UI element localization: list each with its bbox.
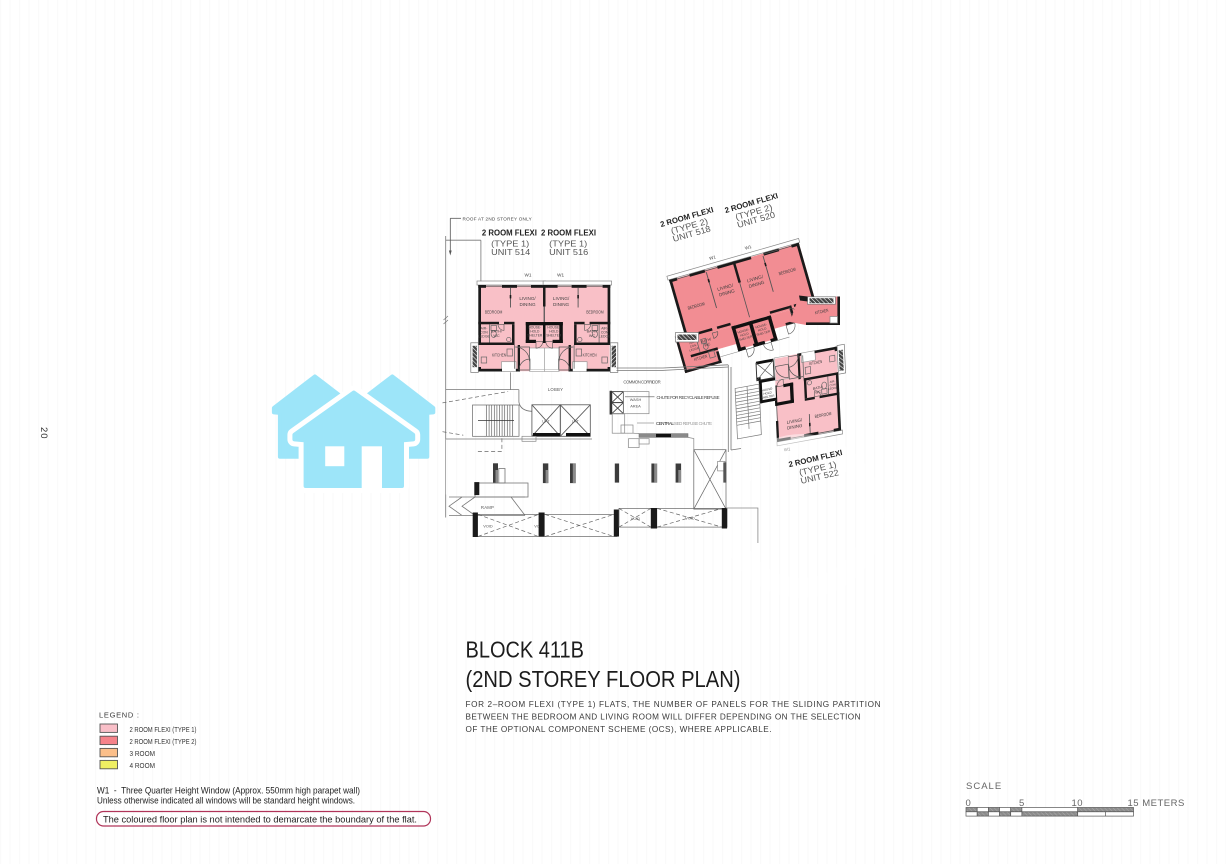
svg-text:WASH: WASH — [630, 397, 642, 402]
svg-text:BEDROOM: BEDROOM — [485, 310, 503, 315]
svg-text:SHELTER: SHELTER — [527, 334, 543, 338]
svg-text:4 ROOM: 4 ROOM — [130, 763, 156, 770]
svg-text:WC: WC — [589, 334, 596, 338]
svg-text:DINING: DINING — [553, 302, 570, 307]
svg-text:VOID: VOID — [631, 516, 641, 521]
svg-text:2 ROOM FLEXI (TYPE 2): 2 ROOM FLEXI (TYPE 2) — [130, 739, 197, 746]
svg-text:BETWEEN THE BEDROOM AND LIVING: BETWEEN THE BEDROOM AND LIVING ROOM WILL… — [466, 713, 861, 722]
svg-text:15 METERS: 15 METERS — [1128, 798, 1185, 809]
svg-text:LEDGE: LEDGE — [478, 335, 490, 339]
svg-text:2 ROOM FLEXI (TYPE 1): 2 ROOM FLEXI (TYPE 1) — [130, 727, 197, 734]
svg-text:LIFT: LIFT — [542, 420, 550, 424]
svg-text:20: 20 — [38, 427, 49, 440]
svg-text:WC: WC — [493, 334, 500, 338]
svg-text:3 ROOM: 3 ROOM — [130, 751, 156, 758]
svg-text:SHELTER: SHELTER — [546, 334, 562, 338]
svg-text:DINING: DINING — [519, 302, 536, 307]
svg-text:BATH/: BATH/ — [491, 330, 503, 334]
svg-text:W1: W1 — [557, 272, 564, 277]
svg-text:The coloured floor plan is not: The coloured floor plan is not intended … — [103, 814, 417, 825]
svg-text:LEGEND :: LEGEND : — [99, 711, 140, 720]
svg-text:BATH/: BATH/ — [587, 330, 599, 334]
svg-text:CENTRALISED REFUSE CHUTE: CENTRALISED REFUSE CHUTE — [656, 421, 712, 426]
svg-text:Unless otherwise indicated all: Unless otherwise indicated all windows w… — [97, 796, 355, 806]
svg-text:UNIT 516: UNIT 516 — [549, 247, 588, 257]
svg-text:ROOF AT 2ND STOREY ONLY: ROOF AT 2ND STOREY ONLY — [463, 216, 532, 221]
svg-text:LOBBY: LOBBY — [548, 387, 563, 392]
svg-text:LIVING/: LIVING/ — [519, 296, 536, 301]
svg-text:W1: W1 — [525, 272, 532, 277]
svg-text:BEDROOM: BEDROOM — [586, 310, 604, 315]
svg-text:(2ND STOREY FLOOR PLAN): (2ND STOREY FLOOR PLAN) — [466, 666, 741, 692]
svg-text:LIFT: LIFT — [572, 420, 580, 424]
svg-text:2 ROOM FLEXI: 2 ROOM FLEXI — [482, 229, 537, 238]
svg-text:2 ROOM FLEXI: 2 ROOM FLEXI — [541, 229, 596, 238]
svg-text:VOID: VOID — [685, 516, 695, 521]
svg-text:LEDGE: LEDGE — [599, 335, 611, 339]
svg-text:BLOCK 411B: BLOCK 411B — [466, 637, 585, 663]
svg-text:LIVING/: LIVING/ — [553, 296, 570, 301]
svg-text:W1 - Three Quarter Height Wi: W1 - Three Quarter Height Window (Approx… — [97, 786, 360, 796]
svg-text:UNIT 514: UNIT 514 — [491, 247, 530, 257]
svg-text:KITCHEN: KITCHEN — [492, 353, 506, 358]
svg-text:CHUTE FOR RECYCLABLE REFUSE: CHUTE FOR RECYCLABLE REFUSE — [657, 395, 720, 400]
svg-text:SCALE: SCALE — [966, 781, 1002, 792]
svg-text:AREA: AREA — [630, 404, 641, 409]
svg-text:OF THE OPTIONAL COMPONENT SCHE: OF THE OPTIONAL COMPONENT SCHEME (OCS), … — [466, 725, 772, 734]
svg-text:FOR 2–ROOM FLEXI (TYPE 1) FLAT: FOR 2–ROOM FLEXI (TYPE 1) FLATS, THE NUM… — [466, 700, 881, 709]
svg-text:COMMON CORRIDOR: COMMON CORRIDOR — [623, 379, 661, 384]
svg-text:RAMP: RAMP — [481, 505, 494, 510]
svg-text:KITCHEN: KITCHEN — [583, 353, 597, 358]
svg-text:VOID: VOID — [483, 524, 493, 529]
